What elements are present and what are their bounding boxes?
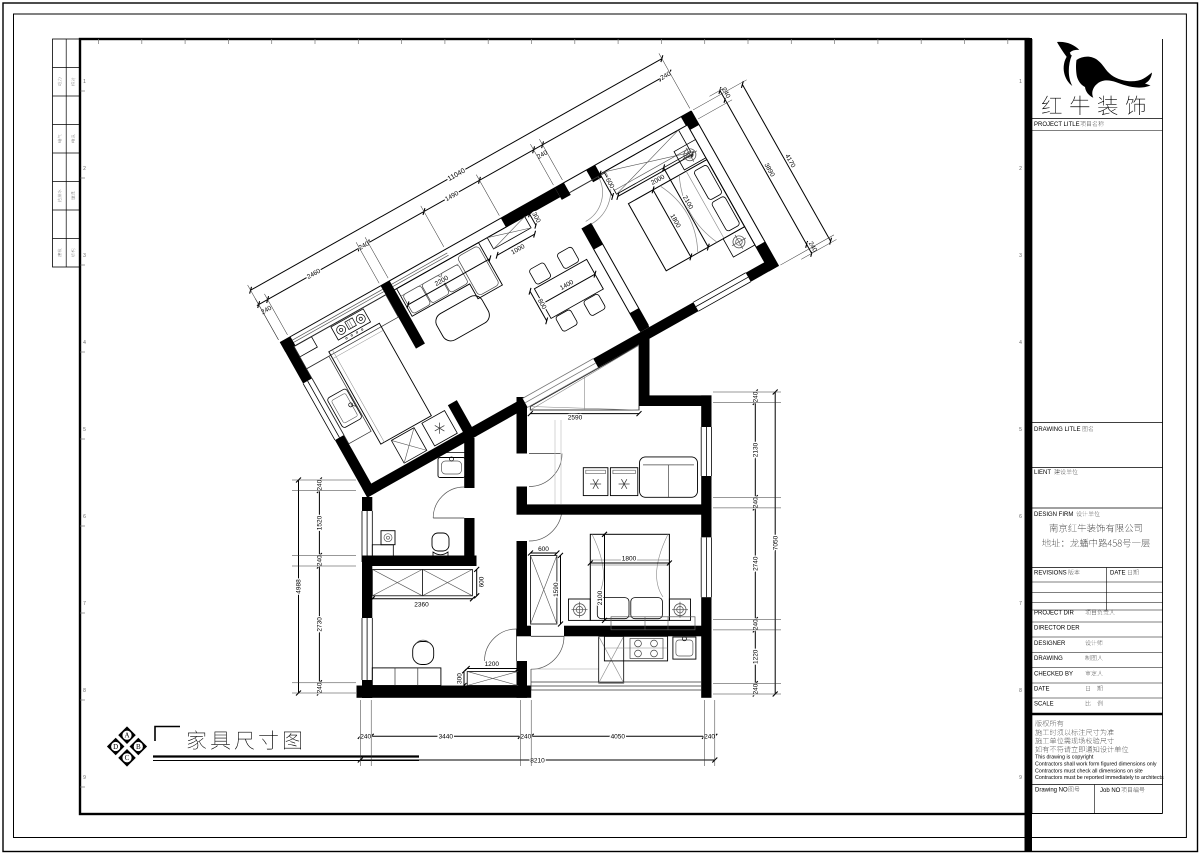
svg-text:PROJECT DIR: PROJECT DIR — [1034, 611, 1075, 617]
svg-text:2590: 2590 — [568, 414, 583, 421]
svg-text:240: 240 — [753, 683, 760, 694]
svg-text:4988: 4988 — [296, 579, 303, 594]
svg-text:6: 6 — [83, 514, 86, 520]
svg-text:1800: 1800 — [622, 556, 637, 563]
svg-text:6: 6 — [1019, 514, 1022, 520]
svg-text:REVISIONS: REVISIONS — [1034, 571, 1067, 577]
svg-text:240: 240 — [317, 479, 324, 490]
svg-text:DRAWING: DRAWING — [1034, 656, 1063, 662]
svg-text:240: 240 — [753, 391, 760, 402]
svg-text:240: 240 — [360, 734, 371, 741]
svg-text:240: 240 — [317, 682, 324, 693]
svg-text:5: 5 — [83, 427, 86, 433]
svg-text:7: 7 — [83, 601, 86, 607]
svg-text:PROJECT LITLE: PROJECT LITLE — [1034, 122, 1080, 128]
svg-text:DRAWING LITLE: DRAWING LITLE — [1034, 427, 1080, 433]
svg-text:DATE: DATE — [1034, 687, 1050, 693]
svg-text:2100: 2100 — [597, 590, 604, 605]
svg-text:SCALE: SCALE — [1034, 702, 1054, 708]
svg-text:8210: 8210 — [530, 757, 545, 764]
svg-text:Contractors shall work form fi: Contractors shall work form figured dime… — [1035, 762, 1157, 768]
svg-text:2130: 2130 — [753, 442, 760, 457]
svg-text:2: 2 — [1019, 166, 1022, 172]
svg-text:8: 8 — [83, 688, 86, 694]
svg-text:Drawing NO: Drawing NO — [1035, 788, 1068, 794]
svg-text:DESIGN FIRM: DESIGN FIRM — [1034, 512, 1073, 518]
svg-text:1: 1 — [1019, 79, 1022, 85]
svg-text:3: 3 — [1019, 253, 1022, 259]
svg-text:DATE: DATE — [1110, 571, 1126, 577]
svg-text:5: 5 — [1019, 427, 1022, 433]
svg-text:240: 240 — [753, 497, 760, 508]
svg-text:D: D — [113, 743, 118, 751]
svg-text:Job NO: Job NO — [1100, 788, 1121, 794]
svg-text:CHECKED BY: CHECKED BY — [1034, 672, 1073, 678]
svg-text:C: C — [125, 754, 130, 762]
svg-text:A: A — [124, 732, 129, 740]
svg-text:LIENT: LIENT — [1034, 470, 1051, 476]
svg-text:4: 4 — [83, 340, 86, 346]
svg-text:240: 240 — [753, 619, 760, 630]
svg-text:9: 9 — [1019, 775, 1022, 781]
svg-text:240: 240 — [520, 734, 531, 741]
svg-text:1520: 1520 — [317, 515, 324, 530]
svg-text:B: B — [136, 743, 141, 751]
svg-text:8: 8 — [1019, 688, 1022, 694]
svg-text:1200: 1200 — [485, 661, 500, 668]
svg-text:240: 240 — [317, 555, 324, 566]
svg-text:4050: 4050 — [611, 734, 626, 741]
svg-text:Contractors must check all dim: Contractors must check all dimensions on… — [1035, 769, 1143, 775]
svg-text:DESIGNER: DESIGNER — [1034, 641, 1066, 647]
svg-text:600: 600 — [479, 576, 486, 587]
svg-text:9: 9 — [83, 775, 86, 781]
svg-text:1: 1 — [83, 79, 86, 85]
svg-text:2360: 2360 — [414, 601, 429, 608]
svg-text:300: 300 — [457, 673, 464, 684]
svg-text:4: 4 — [1019, 340, 1022, 346]
svg-text:3: 3 — [83, 253, 86, 259]
svg-text:7: 7 — [1019, 601, 1022, 607]
svg-text:240: 240 — [704, 734, 715, 741]
svg-text:This drawing is copyright: This drawing is copyright — [1035, 755, 1094, 761]
svg-text:Contractors must be reported i: Contractors must be reported immediately… — [1035, 775, 1164, 781]
svg-text:2740: 2740 — [753, 556, 760, 571]
svg-text:7050: 7050 — [772, 535, 779, 550]
svg-text:3440: 3440 — [439, 734, 454, 741]
svg-text:DIRECTOR DER: DIRECTOR DER — [1034, 626, 1080, 632]
svg-text:2: 2 — [83, 166, 86, 172]
svg-text:1590: 1590 — [553, 582, 560, 597]
svg-text:600: 600 — [538, 546, 549, 553]
svg-text:1220: 1220 — [753, 649, 760, 664]
svg-text:2730: 2730 — [317, 617, 324, 632]
